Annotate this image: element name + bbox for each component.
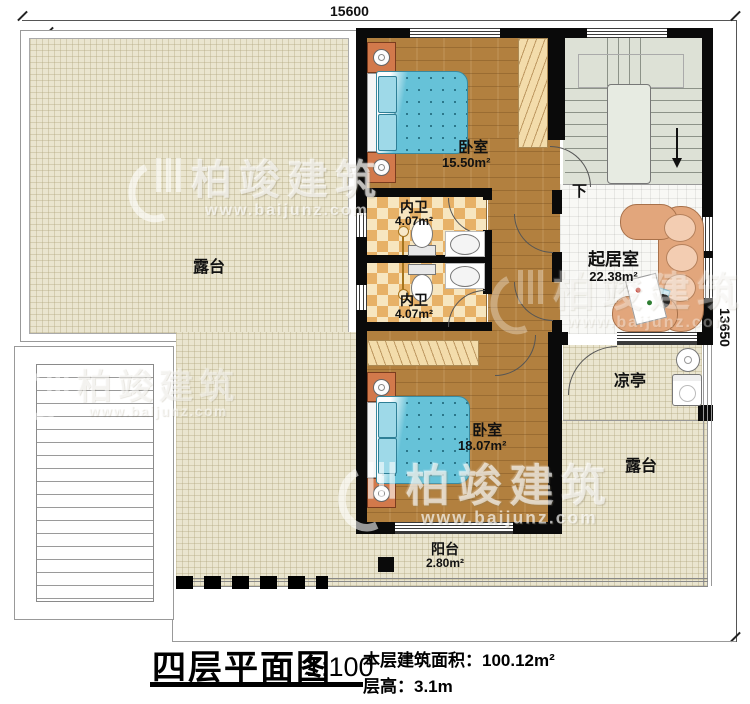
pillow bbox=[378, 402, 397, 438]
railing-right bbox=[703, 345, 713, 586]
wall-bedroom-top-right bbox=[548, 28, 565, 140]
wall-right-stairwell bbox=[702, 28, 713, 190]
room-label-balcony: 阳台 2.80m² bbox=[426, 541, 464, 571]
room-name: 卧室 bbox=[458, 422, 506, 439]
window bbox=[617, 332, 697, 345]
stair-outline bbox=[578, 54, 684, 88]
room-area: 2.80m² bbox=[426, 557, 464, 571]
nightstand bbox=[367, 42, 396, 73]
towel-rail bbox=[402, 234, 404, 255]
column-balcony bbox=[378, 557, 394, 572]
room-name: 内卫 bbox=[395, 292, 433, 308]
room-area: 4.07m² bbox=[395, 308, 433, 322]
room-label-living: 起居室 22.38m² bbox=[588, 250, 639, 284]
stairs-down-label: 下 bbox=[572, 183, 587, 200]
sofa-cushion bbox=[666, 244, 698, 272]
room-area: 18.07m² bbox=[458, 439, 506, 454]
window bbox=[395, 522, 513, 534]
floor-area-note: 本层建筑面积：100.12m² bbox=[363, 646, 555, 671]
room-name: 内卫 bbox=[395, 199, 433, 215]
wall-bedroom-bottom-right bbox=[548, 332, 562, 532]
room-name: 卧室 bbox=[442, 139, 490, 156]
nightstand bbox=[367, 152, 396, 183]
stair-steps-right bbox=[648, 88, 702, 184]
dimension-line-top bbox=[22, 20, 736, 21]
floor-area-value: 100.12m² bbox=[482, 651, 555, 670]
room-area: 4.07m² bbox=[395, 215, 433, 229]
room-name: 露台 bbox=[193, 259, 225, 276]
room-name: 露台 bbox=[625, 458, 657, 475]
room-label-pavilion: 凉亭 bbox=[614, 373, 646, 391]
window bbox=[587, 28, 667, 38]
pillow bbox=[378, 114, 397, 151]
wall-bedroom-top-bottom bbox=[356, 188, 492, 197]
pavilion-terrace-divider bbox=[563, 420, 702, 421]
stair-down-arrowhead-icon bbox=[672, 158, 682, 168]
window bbox=[410, 28, 500, 38]
room-area: 15.50m² bbox=[442, 156, 490, 171]
washer-fixture bbox=[672, 374, 702, 406]
floor-height-value: 3.1m bbox=[414, 677, 453, 696]
wardrobe bbox=[518, 38, 548, 148]
floor-height-label: 层高： bbox=[363, 677, 414, 696]
room-label-terrace-right: 露台 bbox=[625, 458, 657, 476]
window bbox=[356, 213, 367, 237]
wall-living-bottom bbox=[552, 332, 568, 345]
dimension-label-top: 15600 bbox=[330, 3, 369, 19]
dimension-label-right: 13650 bbox=[717, 308, 733, 347]
sink-fixture bbox=[450, 266, 480, 287]
floor-plan-canvas: 15600 13650 bbox=[0, 0, 750, 704]
pillow bbox=[378, 76, 397, 113]
lower-roof-stripes bbox=[36, 364, 154, 602]
room-label-terrace-left: 露台 bbox=[193, 259, 225, 277]
room-label-bath-top: 内卫 4.07m² bbox=[395, 199, 433, 229]
round-sink-fixture bbox=[676, 348, 700, 372]
wall-hall-living bbox=[552, 190, 562, 214]
stair-landing bbox=[607, 84, 651, 184]
room-name: 起居室 bbox=[588, 250, 639, 270]
floor-height-note: 层高：3.1m bbox=[363, 672, 453, 697]
terrace-left-floor-lower bbox=[176, 332, 356, 586]
wardrobe bbox=[367, 340, 479, 366]
wall-living-bottom bbox=[697, 332, 713, 345]
window bbox=[356, 285, 367, 310]
floor-area-label: 本层建筑面积： bbox=[363, 651, 482, 670]
terrace-left-floor bbox=[29, 38, 349, 334]
terrace-right-floor bbox=[560, 420, 707, 586]
wall-hall-living bbox=[552, 252, 562, 282]
towel-rail bbox=[402, 263, 404, 289]
stair-down-arrow-icon bbox=[676, 128, 678, 158]
room-label-bedroom-bottom: 卧室 18.07m² bbox=[458, 422, 506, 454]
dimension-line-right bbox=[736, 20, 737, 642]
room-name: 阳台 bbox=[426, 541, 464, 557]
room-label-bath-bottom: 内卫 4.07m² bbox=[395, 292, 433, 322]
room-label-bedroom-top: 卧室 15.50m² bbox=[442, 139, 490, 171]
room-area: 22.38m² bbox=[588, 270, 639, 285]
room-name: 凉亭 bbox=[614, 373, 646, 390]
dashed-wall-bottom bbox=[176, 576, 328, 589]
pillow bbox=[378, 438, 397, 474]
sofa-cushion bbox=[664, 214, 696, 242]
wall-left bbox=[356, 28, 367, 534]
sink-fixture bbox=[450, 234, 480, 255]
